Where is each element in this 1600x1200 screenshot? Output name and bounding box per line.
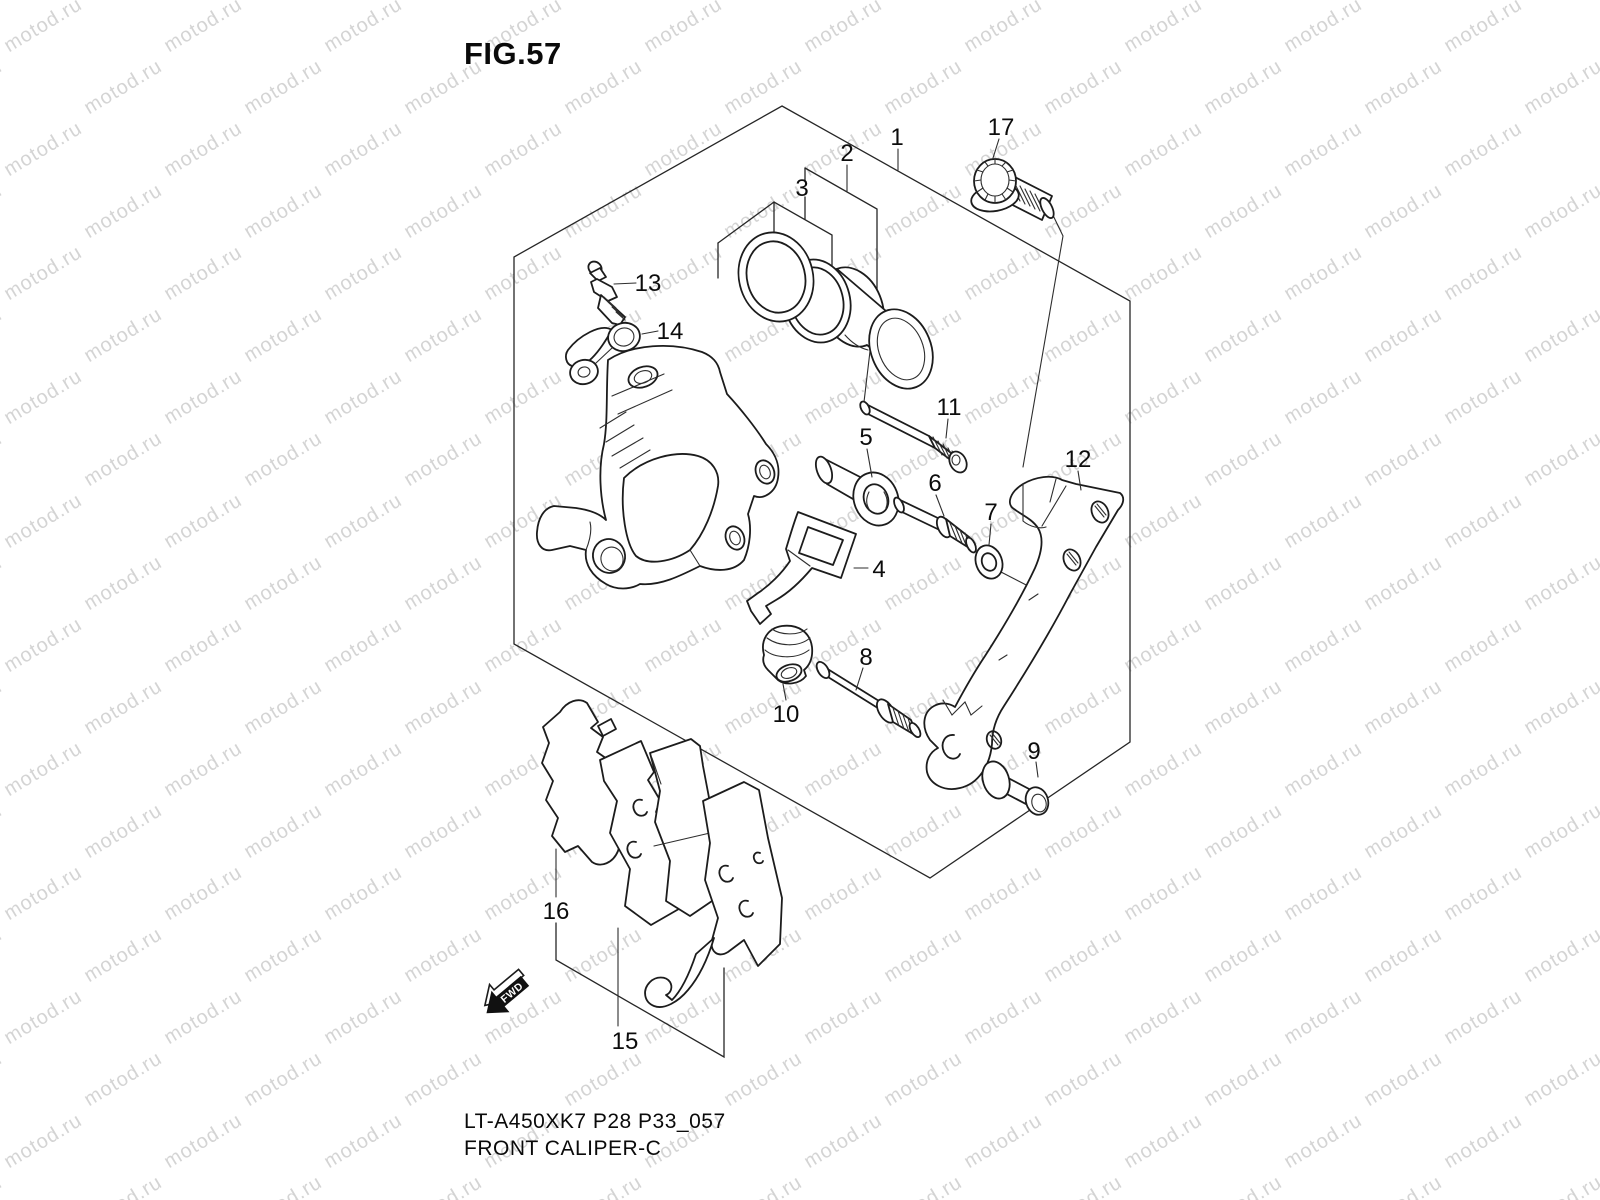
callout-leader: [989, 524, 991, 545]
bracket-bushing: [978, 758, 1052, 818]
brake-pads: [542, 700, 782, 1007]
callout-number: 11: [937, 394, 962, 421]
callout-number: 14: [657, 318, 684, 345]
pad-pin: [814, 660, 923, 739]
callout-number: 5: [859, 424, 872, 451]
pad-spring-clip: [747, 512, 856, 624]
callout-leader: [783, 684, 786, 700]
callout-leader: [993, 139, 999, 158]
caliper-mount-bolt: [969, 159, 1056, 220]
bleeder-valve: [586, 259, 625, 325]
caliper-body: [537, 346, 779, 589]
callout-number: 17: [988, 114, 1015, 141]
callout-number: 1: [890, 124, 903, 151]
callout-number: 8: [859, 644, 872, 671]
slide-pin: [892, 496, 978, 554]
fwd-arrow: FWD: [474, 964, 535, 1023]
callout-leader: [856, 668, 863, 690]
callout-number: 6: [928, 470, 941, 497]
callout-number: 7: [984, 499, 997, 526]
caliper-bracket: [924, 477, 1123, 789]
callout-leader: [946, 419, 948, 438]
callout-leader: [614, 283, 636, 284]
callout-number: 16: [543, 898, 570, 925]
callout-number: 2: [840, 140, 853, 167]
catalog-page: motod.rumotod.rumotod.rumotod.rumotod.ru…: [0, 0, 1600, 1200]
exploded-diagram: FWD 1234567891011121314151617: [0, 0, 1600, 1200]
callout-number: 9: [1027, 738, 1040, 765]
callout-number: 10: [773, 701, 800, 728]
pin-boot: [763, 626, 812, 685]
callout-number: 4: [872, 556, 885, 583]
piston-seals: [729, 224, 859, 349]
model-code: LT-A450XK7 P28 P33_057: [464, 1110, 726, 1134]
slide-pin-boot: [813, 454, 906, 531]
callout-leader: [642, 331, 658, 334]
figure-name: FRONT CALIPER-C: [464, 1137, 661, 1161]
callout-number: 13: [635, 270, 662, 297]
callout-number: 15: [612, 1028, 639, 1055]
callout-number: 12: [1065, 446, 1092, 473]
callout-leader: [936, 495, 944, 516]
callout-number: 3: [795, 175, 808, 202]
